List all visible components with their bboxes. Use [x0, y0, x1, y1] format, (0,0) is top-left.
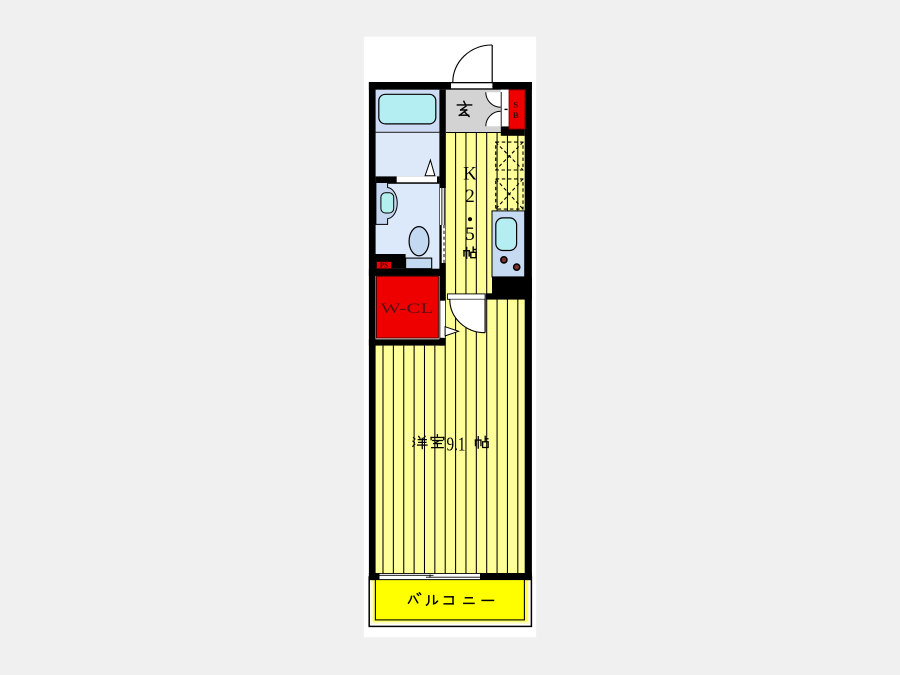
svg-text:5: 5: [465, 224, 475, 245]
svg-text:2: 2: [465, 186, 475, 207]
svg-text:W-CL: W-CL: [381, 301, 434, 317]
svg-text:9.1: 9.1: [447, 433, 466, 455]
svg-text:PS: PS: [380, 262, 388, 270]
svg-text:K: K: [463, 163, 477, 184]
svg-text:S: S: [513, 100, 518, 110]
svg-text:B: B: [513, 110, 519, 120]
